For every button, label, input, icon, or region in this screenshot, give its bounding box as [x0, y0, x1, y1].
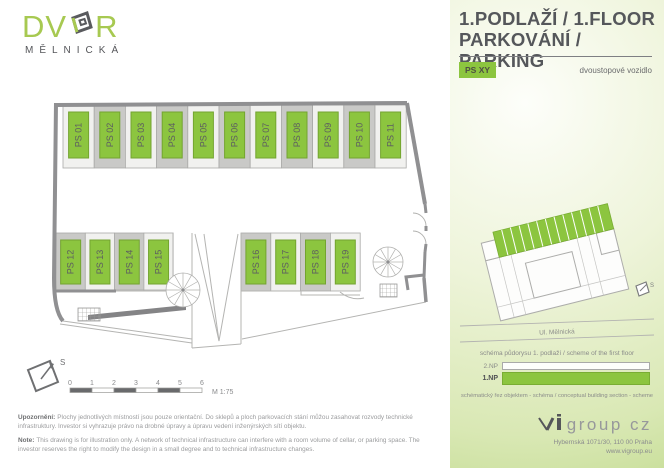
parking-space-label: PS 16	[251, 250, 261, 275]
drawing-sheet: DV R MĚLNICKÁ PS 01PS 02PS 03PS 04PS 05P…	[0, 0, 664, 468]
parking-space-ps-16: PS 16	[241, 233, 271, 291]
info-panel: 1.PODLAŽÍ / 1.FLOOR PARKOVÁNÍ / PARKING …	[450, 0, 664, 468]
section-level-label: 1.NP	[472, 375, 498, 382]
parking-space-label: PS 08	[292, 123, 302, 148]
section-level-2np: 2.NP	[472, 362, 650, 370]
section-level-bar	[502, 362, 650, 370]
disclaimer-cz: Upozornění:Plochy jednotlivých místností…	[18, 414, 442, 431]
parking-space-label: PS 07	[261, 123, 271, 148]
scale-tick: 1	[90, 380, 94, 387]
scale-tick: 2	[112, 380, 116, 387]
parking-space-ps-03: PS 03	[125, 105, 156, 168]
parking-space-label: PS 15	[154, 250, 164, 275]
schema-caption: schéma půdorysu 1. podlaží / scheme of t…	[450, 350, 664, 357]
parking-space-label: PS 11	[386, 123, 396, 147]
section-level-label: 2.NP	[472, 363, 498, 370]
street-label: Ul. Mělnická	[539, 328, 575, 336]
parking-space-label: PS 09	[323, 123, 333, 148]
parking-space-ps-08: PS 08	[281, 105, 312, 168]
parking-space-ps-18: PS 18	[301, 233, 331, 291]
parking-space-ps-02: PS 02	[94, 105, 125, 168]
parking-space-ps-19: PS 19	[330, 233, 360, 291]
disclaimer-cz-label: Upozornění:	[18, 414, 55, 421]
legend-badge: PS XY	[459, 62, 496, 78]
parking-row-bottom-left: PS 12PS 13PS 14PS 15	[56, 233, 173, 290]
parking-space-ps-06: PS 06	[219, 105, 250, 168]
door-swing-icons	[413, 213, 426, 244]
vigroup-logo: group cz	[537, 414, 652, 436]
parking-space-label: PS 19	[340, 250, 350, 275]
parking-space-label: PS 14	[124, 250, 134, 275]
scale-label: M 1:75	[212, 389, 234, 396]
parking-space-label: PS 10	[354, 123, 364, 148]
scale-tick: 4	[156, 380, 160, 387]
street: Ul. Mělnická	[460, 319, 654, 342]
parking-space-label: PS 06	[230, 123, 240, 148]
website: www.vigroup.eu	[537, 447, 652, 456]
brand-logo: DV R MĚLNICKÁ	[22, 10, 124, 56]
parking-space-ps-01: PS 01	[63, 105, 94, 168]
scale-bar: 0123456 M 1:75	[60, 377, 280, 401]
site-schema: Ul. Mělnická S	[450, 192, 664, 350]
address-line: Hybernská 1071/30, 110 00 Praha	[537, 438, 652, 447]
parking-space-label: PS 02	[105, 123, 115, 148]
section-caption: schématický řez objektem - schéma / conc…	[450, 393, 664, 399]
spiral-staircase-icon	[373, 247, 403, 277]
parking-space-ps-12: PS 12	[56, 233, 85, 290]
stairs-hatch	[380, 284, 397, 297]
ramp	[195, 234, 238, 341]
parking-space-label: PS 05	[198, 123, 208, 148]
brand-wordmark: DV R	[22, 10, 124, 42]
parking-space-label: PS 01	[74, 123, 84, 148]
title-line-1: 1.PODLAŽÍ / 1.FLOOR	[459, 8, 656, 29]
parking-space-ps-11: PS 11	[375, 105, 406, 168]
parking-space-label: PS 18	[311, 250, 321, 275]
disclaimer-en-text: This drawing is for illustration only. A…	[18, 437, 420, 453]
floor-plan: PS 01PS 02PS 03PS 04PS 05PS 06PS 07PS 08…	[18, 92, 448, 362]
parking-space-ps-09: PS 09	[313, 105, 344, 168]
spiral-staircase-icon	[166, 273, 200, 307]
company-address: Hybernská 1071/30, 110 00 Praha www.vigr…	[537, 438, 652, 456]
scale-tick: 0	[68, 380, 72, 387]
legend: PS XY dvoustopové vozidlo	[459, 62, 652, 78]
scale-tick: 6	[200, 380, 204, 387]
mini-north-label: S	[650, 283, 654, 289]
disclaimer-block: Upozornění:Plochy jednotlivých místností…	[18, 414, 442, 460]
disclaimer-en-label: Note:	[18, 437, 34, 444]
parking-space-ps-07: PS 07	[250, 105, 281, 168]
scale-tick: 5	[178, 380, 182, 387]
brand-suffix: R	[95, 12, 118, 42]
mini-north-arrow-icon: S	[636, 282, 654, 296]
parking-row-top: PS 01PS 02PS 03PS 04PS 05PS 06PS 07PS 08…	[63, 105, 406, 168]
parking-space-ps-17: PS 17	[271, 233, 301, 291]
vigroup-logo-mark-icon	[537, 414, 565, 436]
parking-space-label: PS 12	[66, 250, 76, 275]
parking-space-label: PS 17	[281, 250, 291, 275]
section-level-bar-highlighted	[502, 372, 650, 385]
parking-space-ps-04: PS 04	[157, 105, 188, 168]
scale-tick: 3	[134, 380, 138, 387]
brand-subtitle: MĚLNICKÁ	[22, 45, 124, 56]
parking-space-label: PS 04	[167, 123, 177, 148]
vigroup-logo-text: group cz	[567, 416, 652, 434]
brand-prefix: DV	[22, 12, 67, 42]
parking-space-ps-05: PS 05	[188, 105, 219, 168]
disclaimer-cz-text: Plochy jednotlivých místností jsou pouze…	[18, 414, 413, 430]
title-separator	[459, 56, 652, 57]
stairs-hatch	[78, 308, 100, 321]
parking-row-bottom-right: PS 16PS 17PS 18PS 19	[241, 233, 360, 291]
parking-space-ps-10: PS 10	[344, 105, 375, 168]
disclaimer-en: Note:This drawing is for illustration on…	[18, 437, 442, 454]
parking-space-ps-13: PS 13	[85, 233, 114, 290]
north-label: S	[60, 358, 65, 367]
parking-space-ps-14: PS 14	[115, 233, 144, 290]
section-level-1np: 1.NP	[472, 372, 650, 385]
legend-description: dvoustopové vozidlo	[580, 66, 653, 75]
company-footer: group cz Hybernská 1071/30, 110 00 Praha…	[537, 414, 652, 456]
parking-space-label: PS 13	[95, 250, 105, 275]
building-section-diagram: 2.NP 1.NP	[472, 362, 650, 387]
ramp-edge-wall	[88, 305, 186, 320]
parking-space-label: PS 03	[136, 123, 146, 148]
dvur-logo-mark-icon	[69, 10, 93, 41]
